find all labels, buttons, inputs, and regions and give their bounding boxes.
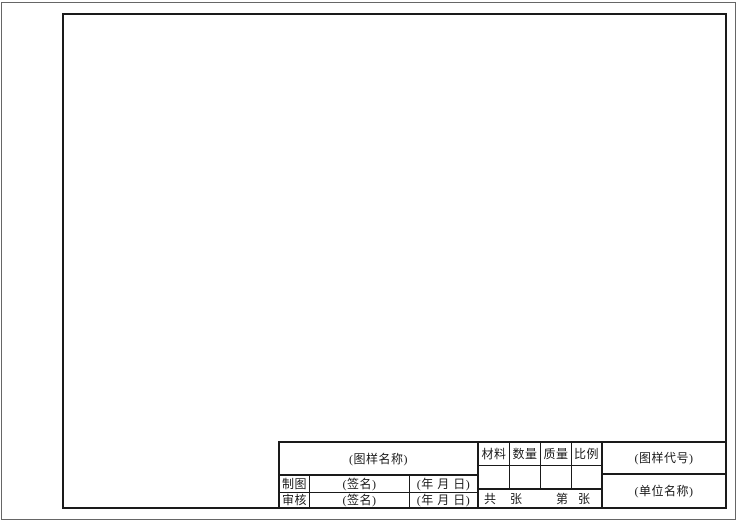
drawing-name-cell: (图样名称) [280,443,477,474]
scale-header: 比例 [572,443,601,465]
drafter-label: 制图 [280,475,309,492]
sheets-index-unit: 张 [578,493,590,505]
material-value-cell [479,466,509,488]
reviewer-label: 审核 [280,493,309,507]
scale-value-cell [572,466,601,488]
sheets-count-row: 共 张 第 张 [477,490,601,507]
sheets-total-label: 共 [484,493,496,505]
reviewer-date-cell: (年 月 日) [410,493,477,507]
drawing-sheet: (图样名称) 制图 (签名) (年 月 日) 审核 (签名) (年 月 日) 材… [0,0,739,523]
quantity-header: 数量 [510,443,540,465]
quantity-value-cell [510,466,540,488]
title-block: (图样名称) 制图 (签名) (年 月 日) 审核 (签名) (年 月 日) 材… [278,441,727,509]
sheets-total-unit: 张 [510,493,522,505]
reviewer-signature-cell: (签名) [310,493,409,507]
mass-header: 质量 [541,443,571,465]
drafter-signature-cell: (签名) [310,475,409,492]
material-header: 材料 [479,443,509,465]
drawing-area [64,15,725,439]
drafter-date-cell: (年 月 日) [410,475,477,492]
drawing-code-cell: (图样代号) [603,443,725,473]
mass-value-cell [541,466,571,488]
company-name-cell: (单位名称) [603,475,725,507]
sheets-index-label: 第 [556,493,568,505]
